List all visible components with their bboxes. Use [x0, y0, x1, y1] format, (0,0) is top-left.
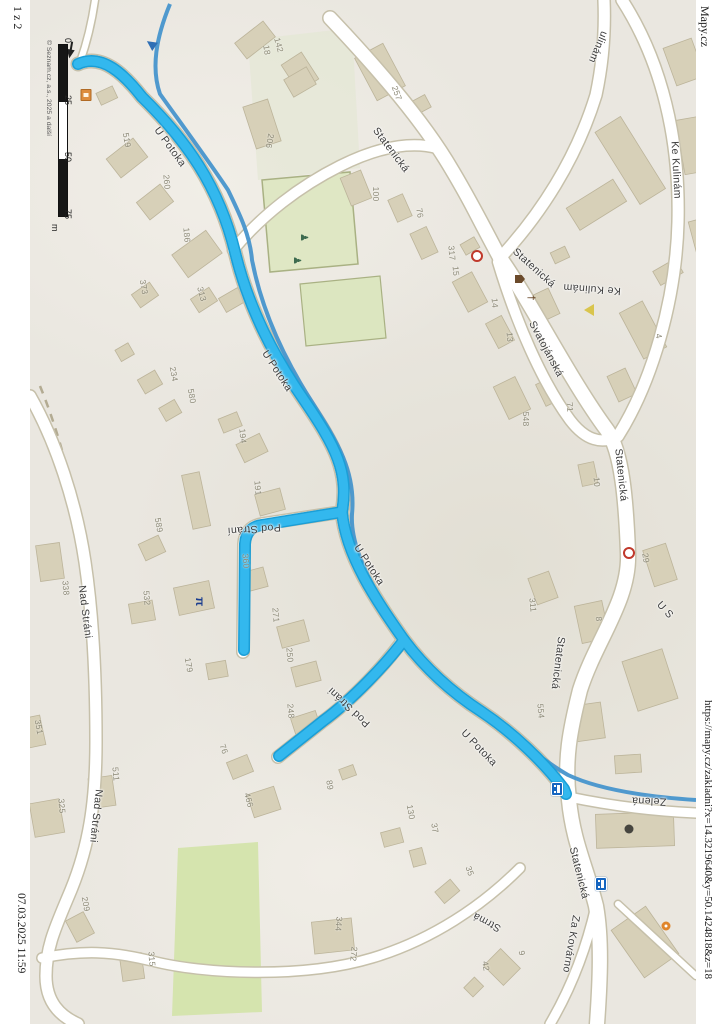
house-number-label: 191 [252, 480, 263, 496]
scale-tick-label: 50 [63, 152, 73, 162]
poi-circle-icon [471, 250, 483, 262]
house-number-label: 511 [110, 767, 121, 782]
house-number-label: 71 [565, 402, 576, 413]
house-number-label: 89 [324, 779, 336, 790]
house-number-label: 10 [592, 477, 603, 488]
street-label: Zelená [632, 794, 667, 807]
house-number-label: 360 [240, 553, 251, 569]
map-attribution: © Seznam.cz, a.s., 2025 a další [45, 40, 52, 136]
printed-map-page: 1 z 2 Mapy.cz https://mapy.cz/zakladni?x… [0, 0, 724, 1024]
house-number-label: 76 [414, 207, 426, 218]
map-canvas: U PotokaU PotokaU PotokaU PotokaPod Strá… [30, 0, 696, 1024]
print-timestamp: 07.03.2025 11:59 [15, 893, 27, 973]
site-name: Mapy.cz [697, 6, 712, 47]
restaurant-icon [662, 922, 671, 931]
bus-stop-icon [551, 782, 563, 796]
house-number-label: 315 [146, 951, 157, 967]
house-number-label: 311 [527, 598, 538, 613]
house-number-label: 325 [56, 798, 67, 814]
scale-bar [58, 44, 68, 217]
house-number-label: 271 [270, 607, 281, 623]
map-url: https://mapy.cz/zakladni?x=14.3219640&y=… [702, 700, 714, 979]
bus-shelter-icon [81, 89, 92, 101]
scale-tick-label: 0 [63, 38, 73, 43]
house-number-label: 186 [181, 227, 192, 243]
house-number-label: 13 [505, 332, 516, 343]
house-number-label: 260 [161, 174, 172, 190]
house-number-label: 317 [446, 245, 457, 261]
scale-bar-unit: m [50, 224, 60, 232]
buildings-layer [30, 21, 696, 997]
house-number-label: 194 [237, 428, 248, 444]
house-number-label: 8 [594, 616, 604, 622]
house-number-label: 18 [261, 44, 273, 55]
house-number-label: 548 [521, 412, 531, 427]
house-number-label: 532 [141, 590, 152, 606]
scale-tick-label: 25 [63, 95, 73, 105]
house-number-label: 248 [285, 703, 296, 719]
poi-circle-icon [623, 547, 635, 559]
give-way-icon [584, 304, 594, 316]
page-number: 1 z 2 [10, 6, 25, 29]
house-number-label: 554 [535, 703, 546, 719]
house-number-label: 344 [333, 916, 344, 932]
house-number-label: 14 [490, 298, 501, 309]
house-number-label: 250 [284, 647, 295, 663]
bus-stop-icon [595, 877, 607, 891]
house-number-label: 338 [60, 580, 71, 596]
poi-dark-icon [625, 825, 634, 834]
house-number-label: 42 [480, 960, 492, 971]
house-number-label: 29 [640, 552, 652, 563]
map-base [30, 0, 696, 1024]
house-number-label: 100 [371, 187, 381, 202]
house-number-label: 37 [429, 822, 441, 833]
house-number-label: 272 [348, 946, 359, 962]
scale-tick-label: 75 [63, 209, 73, 219]
house-number-label: 15 [451, 266, 462, 277]
